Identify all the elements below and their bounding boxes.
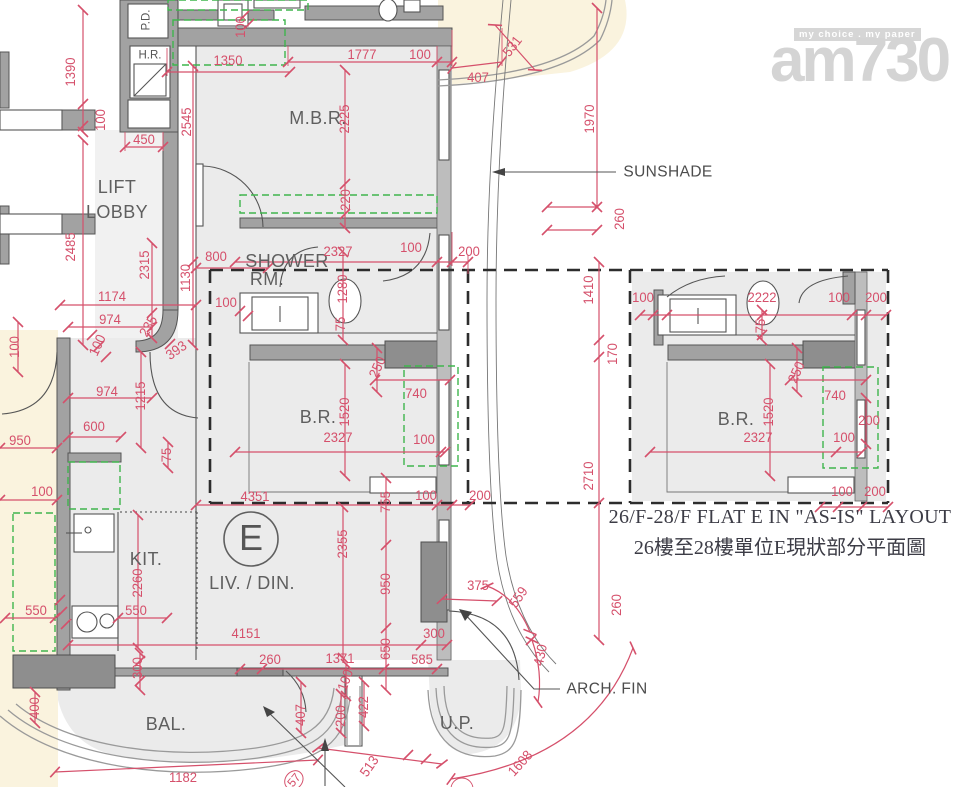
dim-label: 800 <box>205 249 227 263</box>
dim-label: 2327 <box>324 244 353 258</box>
dim-label: 974 <box>96 384 118 398</box>
dim-label: 550 <box>25 603 47 617</box>
dim-label: 400 <box>27 697 41 719</box>
dim-label: 100 <box>93 109 107 131</box>
watermark-logo: am730 <box>770 30 948 92</box>
dim-label: 2710 <box>581 462 595 491</box>
dim-label: 1130 <box>178 264 192 292</box>
dim-label: 450 <box>133 132 155 146</box>
dim-label: 4351 <box>241 489 270 503</box>
dim-label: 200 <box>469 488 491 502</box>
dim-label: 422 <box>356 696 370 718</box>
dim-label: 200 <box>333 705 347 727</box>
dim-label: 75 <box>159 448 173 462</box>
dim-label: 1520 <box>761 398 775 427</box>
floorplan-page: P.D.H.R.LIFTLOBBYM.B.R.SHOWERRM.B.R.KIT.… <box>0 0 976 787</box>
dim-label: 75 <box>333 317 347 331</box>
room-label-br: B.R. <box>300 408 337 426</box>
dim-label: 100 <box>400 240 422 254</box>
dim-label: 100 <box>233 16 247 38</box>
dim-label: 600 <box>83 419 105 433</box>
dim-label: 100 <box>415 488 437 502</box>
dim-label: 2485 <box>63 233 77 262</box>
dim-label: 740 <box>824 388 846 402</box>
dim-label: 1390 <box>63 58 77 87</box>
dim-label: 974 <box>99 312 121 326</box>
caption: 26/F-28/F FLAT E IN "AS-IS" LAYOUT 26樓至2… <box>600 506 960 560</box>
dim-label: 100 <box>31 484 53 498</box>
caption-line-en: 26/F-28/F FLAT E IN "AS-IS" LAYOUT <box>600 506 960 529</box>
room-label-lift-lobby: LIFT <box>98 178 137 196</box>
dim-label: 2315 <box>137 251 151 280</box>
dim-label: 430 <box>531 643 549 667</box>
dim-label: 1350 <box>214 53 243 67</box>
room-label-pd: P.D. <box>141 10 153 31</box>
am730-watermark: my choice . my paper am730 <box>770 22 965 102</box>
dim-label: 950 <box>9 433 31 447</box>
dim-label: 585 <box>411 652 433 666</box>
dim-label: 200 <box>864 484 886 498</box>
annotation-sunshade: SUNSHADE <box>623 164 712 180</box>
dim-label: 1520 <box>337 398 351 427</box>
dim-label: 200 <box>458 244 480 258</box>
dim-label: 100 <box>833 430 855 444</box>
toilet-icon <box>379 0 397 21</box>
room-label-br-asis: B.R. <box>718 410 755 428</box>
dim-label: 1182 <box>169 770 197 784</box>
room-label-livdin: LIV. / DIN. <box>209 574 295 592</box>
caption-line-zh: 26樓至28樓單位E現狀部分平面圖 <box>600 531 960 560</box>
dim-label: 100 <box>828 290 850 304</box>
dim-label: 260 <box>612 208 626 230</box>
dim-label: 200 <box>865 290 887 304</box>
dim-label: 1174 <box>98 289 126 303</box>
dim-label: 1970 <box>582 105 596 134</box>
dim-label: 200 <box>858 413 880 427</box>
flat-e-label: E <box>239 520 263 556</box>
dim-label: 220 <box>338 189 352 211</box>
dim-label: 2327 <box>744 430 773 444</box>
dim-label: 2355 <box>335 530 349 559</box>
dim-label: 100 <box>7 336 21 358</box>
dim-label: 1371 <box>326 651 355 665</box>
dim-label: 170 <box>605 343 619 365</box>
revision-bubble <box>451 778 473 787</box>
dim-label: 75 <box>753 319 767 333</box>
dim-label: 2545 <box>179 108 193 137</box>
room-label-shower: SHOWER <box>245 252 328 270</box>
dim-label: 260 <box>609 594 623 616</box>
dim-label: 650 <box>378 638 392 660</box>
dim-label: 755 <box>378 491 392 513</box>
dim-label: 2327 <box>324 430 353 444</box>
dim-label: 950 <box>378 573 392 595</box>
room-label-up: U.P. <box>440 714 474 732</box>
dim-label: 100 <box>831 484 853 498</box>
dim-label: 100 <box>632 290 654 304</box>
dim-label: 407 <box>293 704 307 726</box>
dim-label: 1777 <box>348 47 377 61</box>
room-label-bal: BAL. <box>146 715 187 733</box>
door-leaf <box>196 164 203 226</box>
dim-label: 100 <box>413 432 435 446</box>
dim-label: 1410 <box>581 276 595 305</box>
flat-interior-fills <box>58 28 886 762</box>
dim-label: 300 <box>423 626 445 640</box>
room-label-shower: RM. <box>250 270 284 288</box>
room-label-lift-lobby: LOBBY <box>86 203 148 221</box>
room-label-kit: KIT. <box>130 550 163 568</box>
dim-label: 1280 <box>335 275 349 304</box>
annotation-arch-fin: ARCH. FIN <box>566 681 647 697</box>
dim-label: 2225 <box>337 105 351 134</box>
dim-label: 740 <box>405 386 427 400</box>
dim-label: 375 <box>467 578 489 592</box>
dim-label: 550 <box>125 603 147 617</box>
dim-label: 407 <box>467 70 489 84</box>
sunshade-lines <box>487 0 556 672</box>
dim-label: 100 <box>409 47 431 61</box>
dim-label: 260 <box>259 652 281 666</box>
dim-label: 4151 <box>232 626 261 640</box>
dim-label: 300 <box>130 657 144 679</box>
dim-label: 2260 <box>130 569 144 598</box>
room-label-hr: H.R. <box>139 50 162 62</box>
dim-label: 2222 <box>748 290 777 304</box>
dim-label: 100 <box>215 295 237 309</box>
dim-label: 1215 <box>133 382 147 411</box>
